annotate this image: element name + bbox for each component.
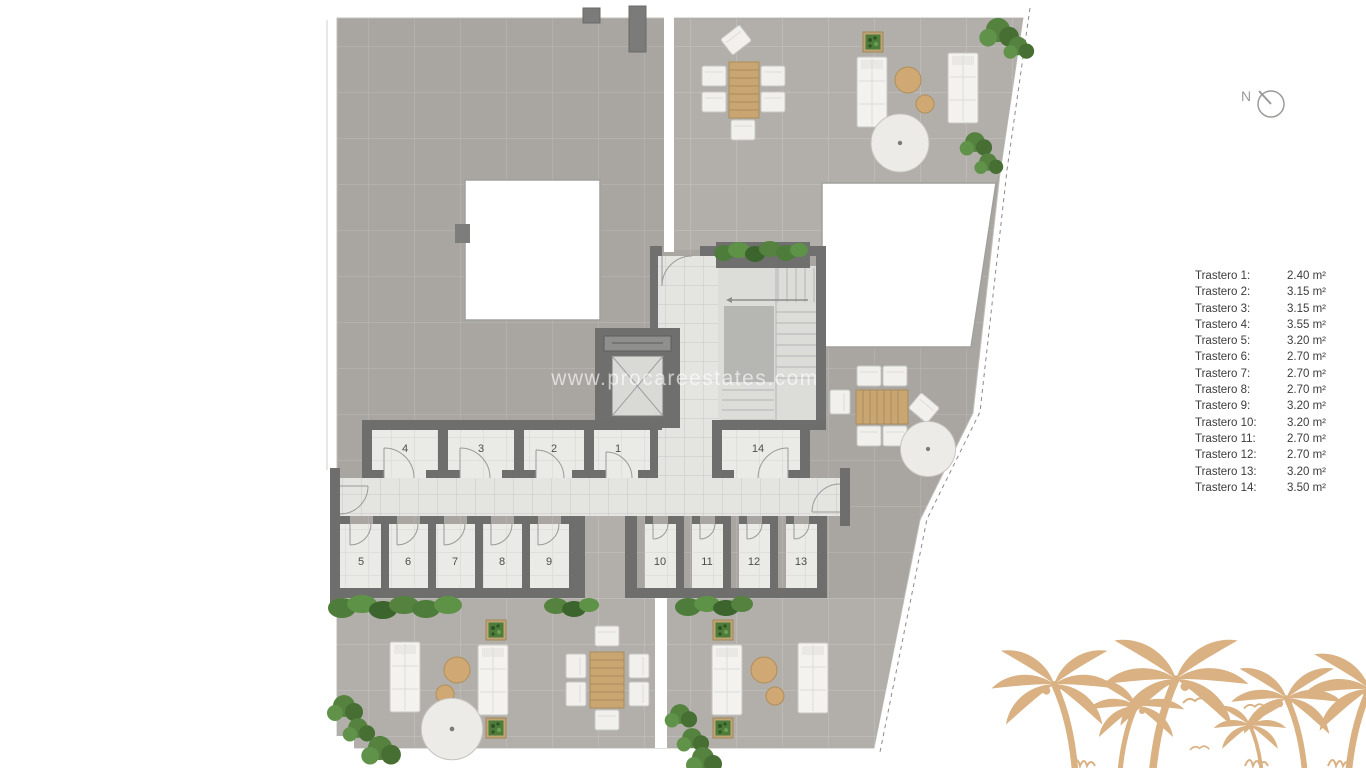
legend-row: Trastero 9:3.20 m² [1195, 398, 1365, 414]
sun-lounger [798, 643, 828, 713]
room-number: 11 [701, 556, 712, 568]
bush [686, 747, 722, 768]
legend-label: Trastero 13: [1195, 464, 1287, 480]
corridor-floor [340, 478, 840, 516]
lightwell-void-right [822, 183, 996, 347]
legend-value: 2.70 m² [1287, 382, 1365, 398]
legend-value: 3.55 m² [1287, 317, 1365, 333]
side-table [916, 95, 934, 113]
legend-row: Trastero 3:3.15 m² [1195, 301, 1365, 317]
legend-row: Trastero 5:3.20 m² [1195, 333, 1365, 349]
room-number: 9 [546, 556, 552, 568]
room-number: 1 [615, 443, 621, 455]
room-number: 13 [795, 556, 807, 568]
elevator [595, 328, 680, 428]
legend-value: 3.20 m² [1287, 333, 1365, 349]
legend-value: 3.15 m² [1287, 301, 1365, 317]
legend-value: 3.15 m² [1287, 284, 1365, 300]
palm-decoration [990, 636, 1366, 768]
room-number: 2 [551, 443, 557, 455]
legend-value: 3.20 m² [1287, 415, 1365, 431]
bird [1190, 746, 1209, 750]
legend-label: Trastero 12: [1195, 447, 1287, 463]
legend-label: Trastero 10: [1195, 415, 1287, 431]
legend-label: Trastero 14: [1195, 480, 1287, 496]
north-compass [1258, 91, 1284, 117]
legend-row: Trastero 6:2.70 m² [1195, 349, 1365, 365]
legend-value: 2.70 m² [1287, 349, 1365, 365]
parasol [421, 698, 482, 759]
sun-lounger [478, 645, 508, 715]
room-number: 12 [748, 556, 760, 568]
legend-row: Trastero 13:3.20 m² [1195, 464, 1365, 480]
void-edge-detail [455, 224, 470, 243]
legend-value: 2.70 m² [1287, 431, 1365, 447]
bird [1183, 698, 1207, 703]
compass-north-label: N [1241, 88, 1251, 104]
legend-label: Trastero 4: [1195, 317, 1287, 333]
room-number: 4 [402, 443, 408, 455]
lightwell-void-left [465, 180, 600, 320]
room-number: 6 [405, 556, 411, 568]
sun-lounger [948, 53, 978, 123]
legend-label: Trastero 5: [1195, 333, 1287, 349]
sun-lounger [712, 645, 742, 715]
legend-row: Trastero 7:2.70 m² [1195, 366, 1365, 382]
legend-row: Trastero 10:3.20 m² [1195, 415, 1365, 431]
side-table [766, 687, 784, 705]
legend-label: Trastero 6: [1195, 349, 1287, 365]
legend-value: 3.20 m² [1287, 398, 1365, 414]
legend-row: Trastero 14:3.50 m² [1195, 480, 1365, 496]
room-number: 7 [452, 556, 458, 568]
side-table [444, 657, 470, 683]
legend-label: Trastero 1: [1195, 268, 1287, 284]
room-number: 10 [654, 556, 666, 568]
legend-row: Trastero 8:2.70 m² [1195, 382, 1365, 398]
floor-plan-page: = [0, 0, 1366, 768]
room-number: 8 [499, 556, 505, 568]
core-planter [714, 241, 810, 268]
legend-row: Trastero 12:2.70 m² [1195, 447, 1365, 463]
room-number: 5 [358, 556, 364, 568]
terrace-passage [585, 516, 625, 598]
sun-lounger [390, 642, 420, 712]
parasol [871, 114, 929, 172]
legend-value: 2.70 m² [1287, 447, 1365, 463]
planter-box [486, 620, 506, 640]
side-table [751, 657, 777, 683]
sun-lounger [857, 57, 887, 127]
legend-label: Trastero 11: [1195, 431, 1287, 447]
legend-row: Trastero 11:2.70 m² [1195, 431, 1365, 447]
side-table [895, 67, 921, 93]
legend-row: Trastero 2:3.15 m² [1195, 284, 1365, 300]
storage-legend: Trastero 1:2.40 m² Trastero 2:3.15 m² Tr… [1195, 268, 1365, 496]
floor-plan-drawing: = [0, 0, 1366, 768]
legend-row: Trastero 4:3.55 m² [1195, 317, 1365, 333]
parasol [900, 421, 955, 476]
legend-value: 2.70 m² [1287, 366, 1365, 382]
legend-label: Trastero 2: [1195, 284, 1287, 300]
legend-label: Trastero 9: [1195, 398, 1287, 414]
legend-label: Trastero 8: [1195, 382, 1287, 398]
legend-row: Trastero 1:2.40 m² [1195, 268, 1365, 284]
room-number: 14 [752, 443, 764, 455]
planter-box [486, 718, 506, 738]
planter-box [713, 718, 733, 738]
legend-label: Trastero 3: [1195, 301, 1287, 317]
grass-tuft [1245, 760, 1268, 766]
legend-value: 2.40 m² [1287, 268, 1365, 284]
legend-value: 3.50 m² [1287, 480, 1365, 496]
planter-box [863, 32, 883, 52]
planter-box [713, 620, 733, 640]
legend-value: 3.20 m² [1287, 464, 1365, 480]
room-number: 3 [478, 443, 484, 455]
stair-landing [724, 306, 774, 382]
legend-label: Trastero 7: [1195, 366, 1287, 382]
